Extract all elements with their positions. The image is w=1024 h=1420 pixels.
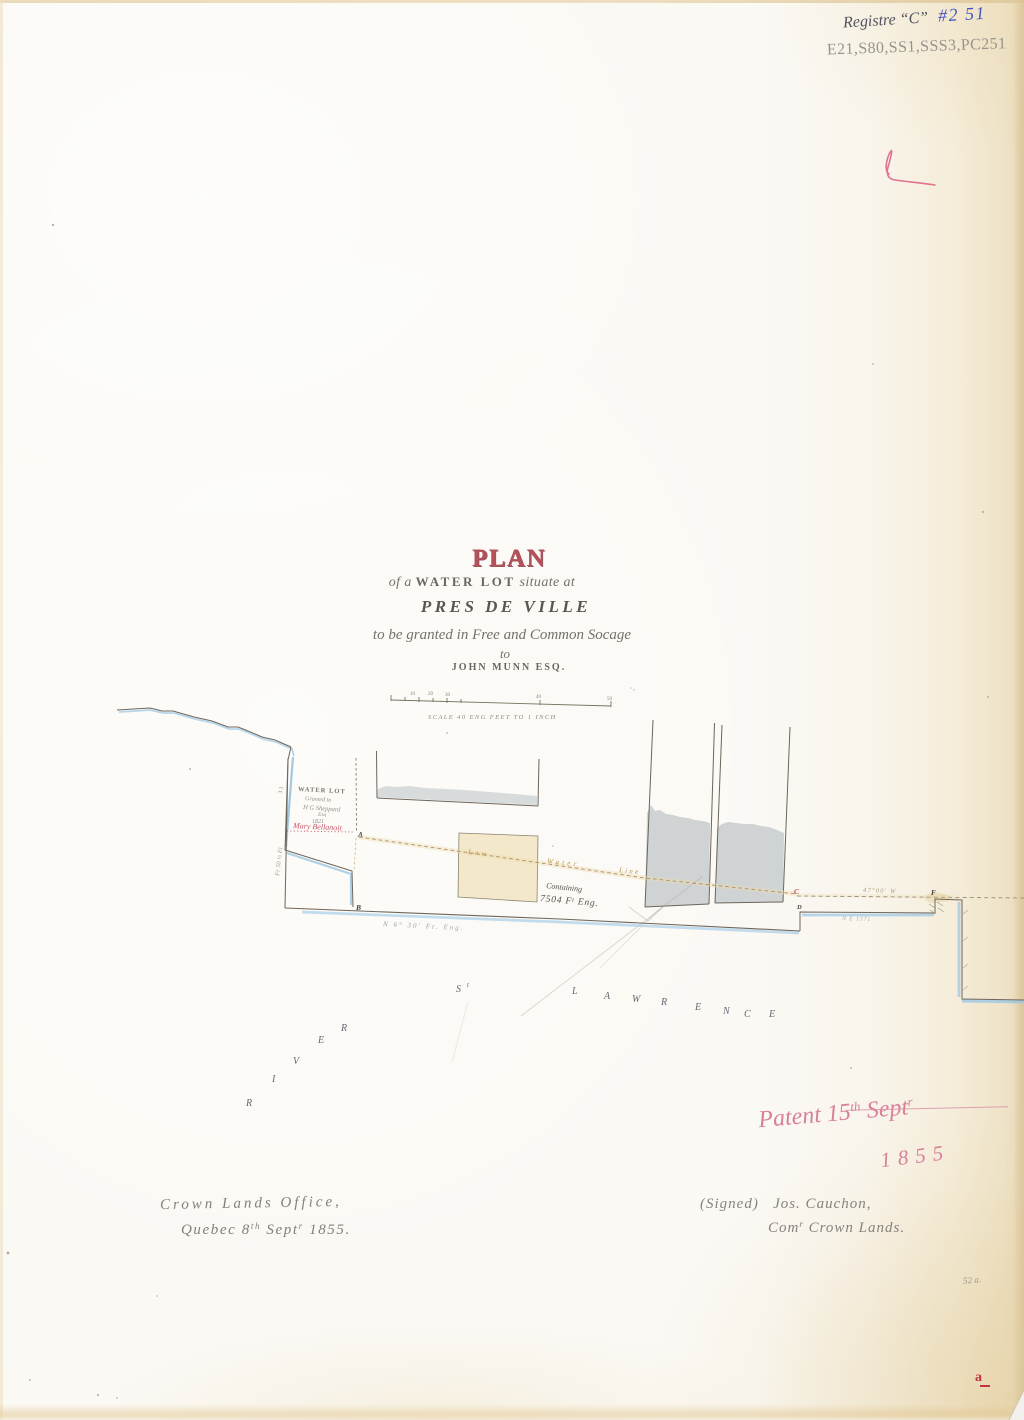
svg-text:S: S [456,984,461,995]
svg-text:E: E [317,1035,324,1046]
svg-text:47°00′ W: 47°00′ W [863,887,897,895]
svg-text:50: 50 [607,697,613,702]
svg-text:D: D [796,904,802,911]
svg-text:R: R [340,1023,347,1034]
svg-text:V: V [293,1056,301,1067]
svg-text:I: I [271,1074,276,1085]
svg-text:E: E [694,1002,701,1013]
svg-text:R: R [245,1098,252,1109]
svg-text:t: t [467,981,470,989]
svg-text:N E 1371: N E 1371 [841,916,871,923]
svg-text:Mary Bellanoit: Mary Bellanoit [292,821,343,833]
svg-text:N: N [722,1006,731,1017]
svg-text:C: C [744,1009,751,1020]
svg-text:Esq: Esq [317,812,327,818]
svg-text:WATER LOT: WATER LOT [298,786,346,795]
svg-text:N 6° 30′ Ft. Eng.: N 6° 30′ Ft. Eng. [382,920,465,932]
svg-text:30: 30 [445,693,451,698]
svg-text:A: A [603,991,611,1002]
svg-text:Granted to: Granted to [305,796,332,804]
svg-text:F: F [931,889,936,897]
svg-text:3 1: 3 1 [278,786,285,794]
svg-text:40: 40 [536,695,542,700]
svg-text:E: E [768,1009,775,1020]
svg-text:20: 20 [428,692,434,697]
svg-text:W: W [632,994,642,1005]
svg-text:Fr 50 ½ Ft: Fr 50 ½ Ft [274,847,285,877]
svg-text:Containing: Containing [546,881,583,894]
svg-text:SCALE 40 ENG FEET TO 1 INCH: SCALE 40 ENG FEET TO 1 INCH [428,714,557,721]
svg-text:10: 10 [410,692,416,697]
svg-text:L: L [571,986,578,997]
svg-text:7504 Ft Eng.: 7504 Ft Eng. [540,894,599,909]
svg-text:R: R [660,997,667,1008]
